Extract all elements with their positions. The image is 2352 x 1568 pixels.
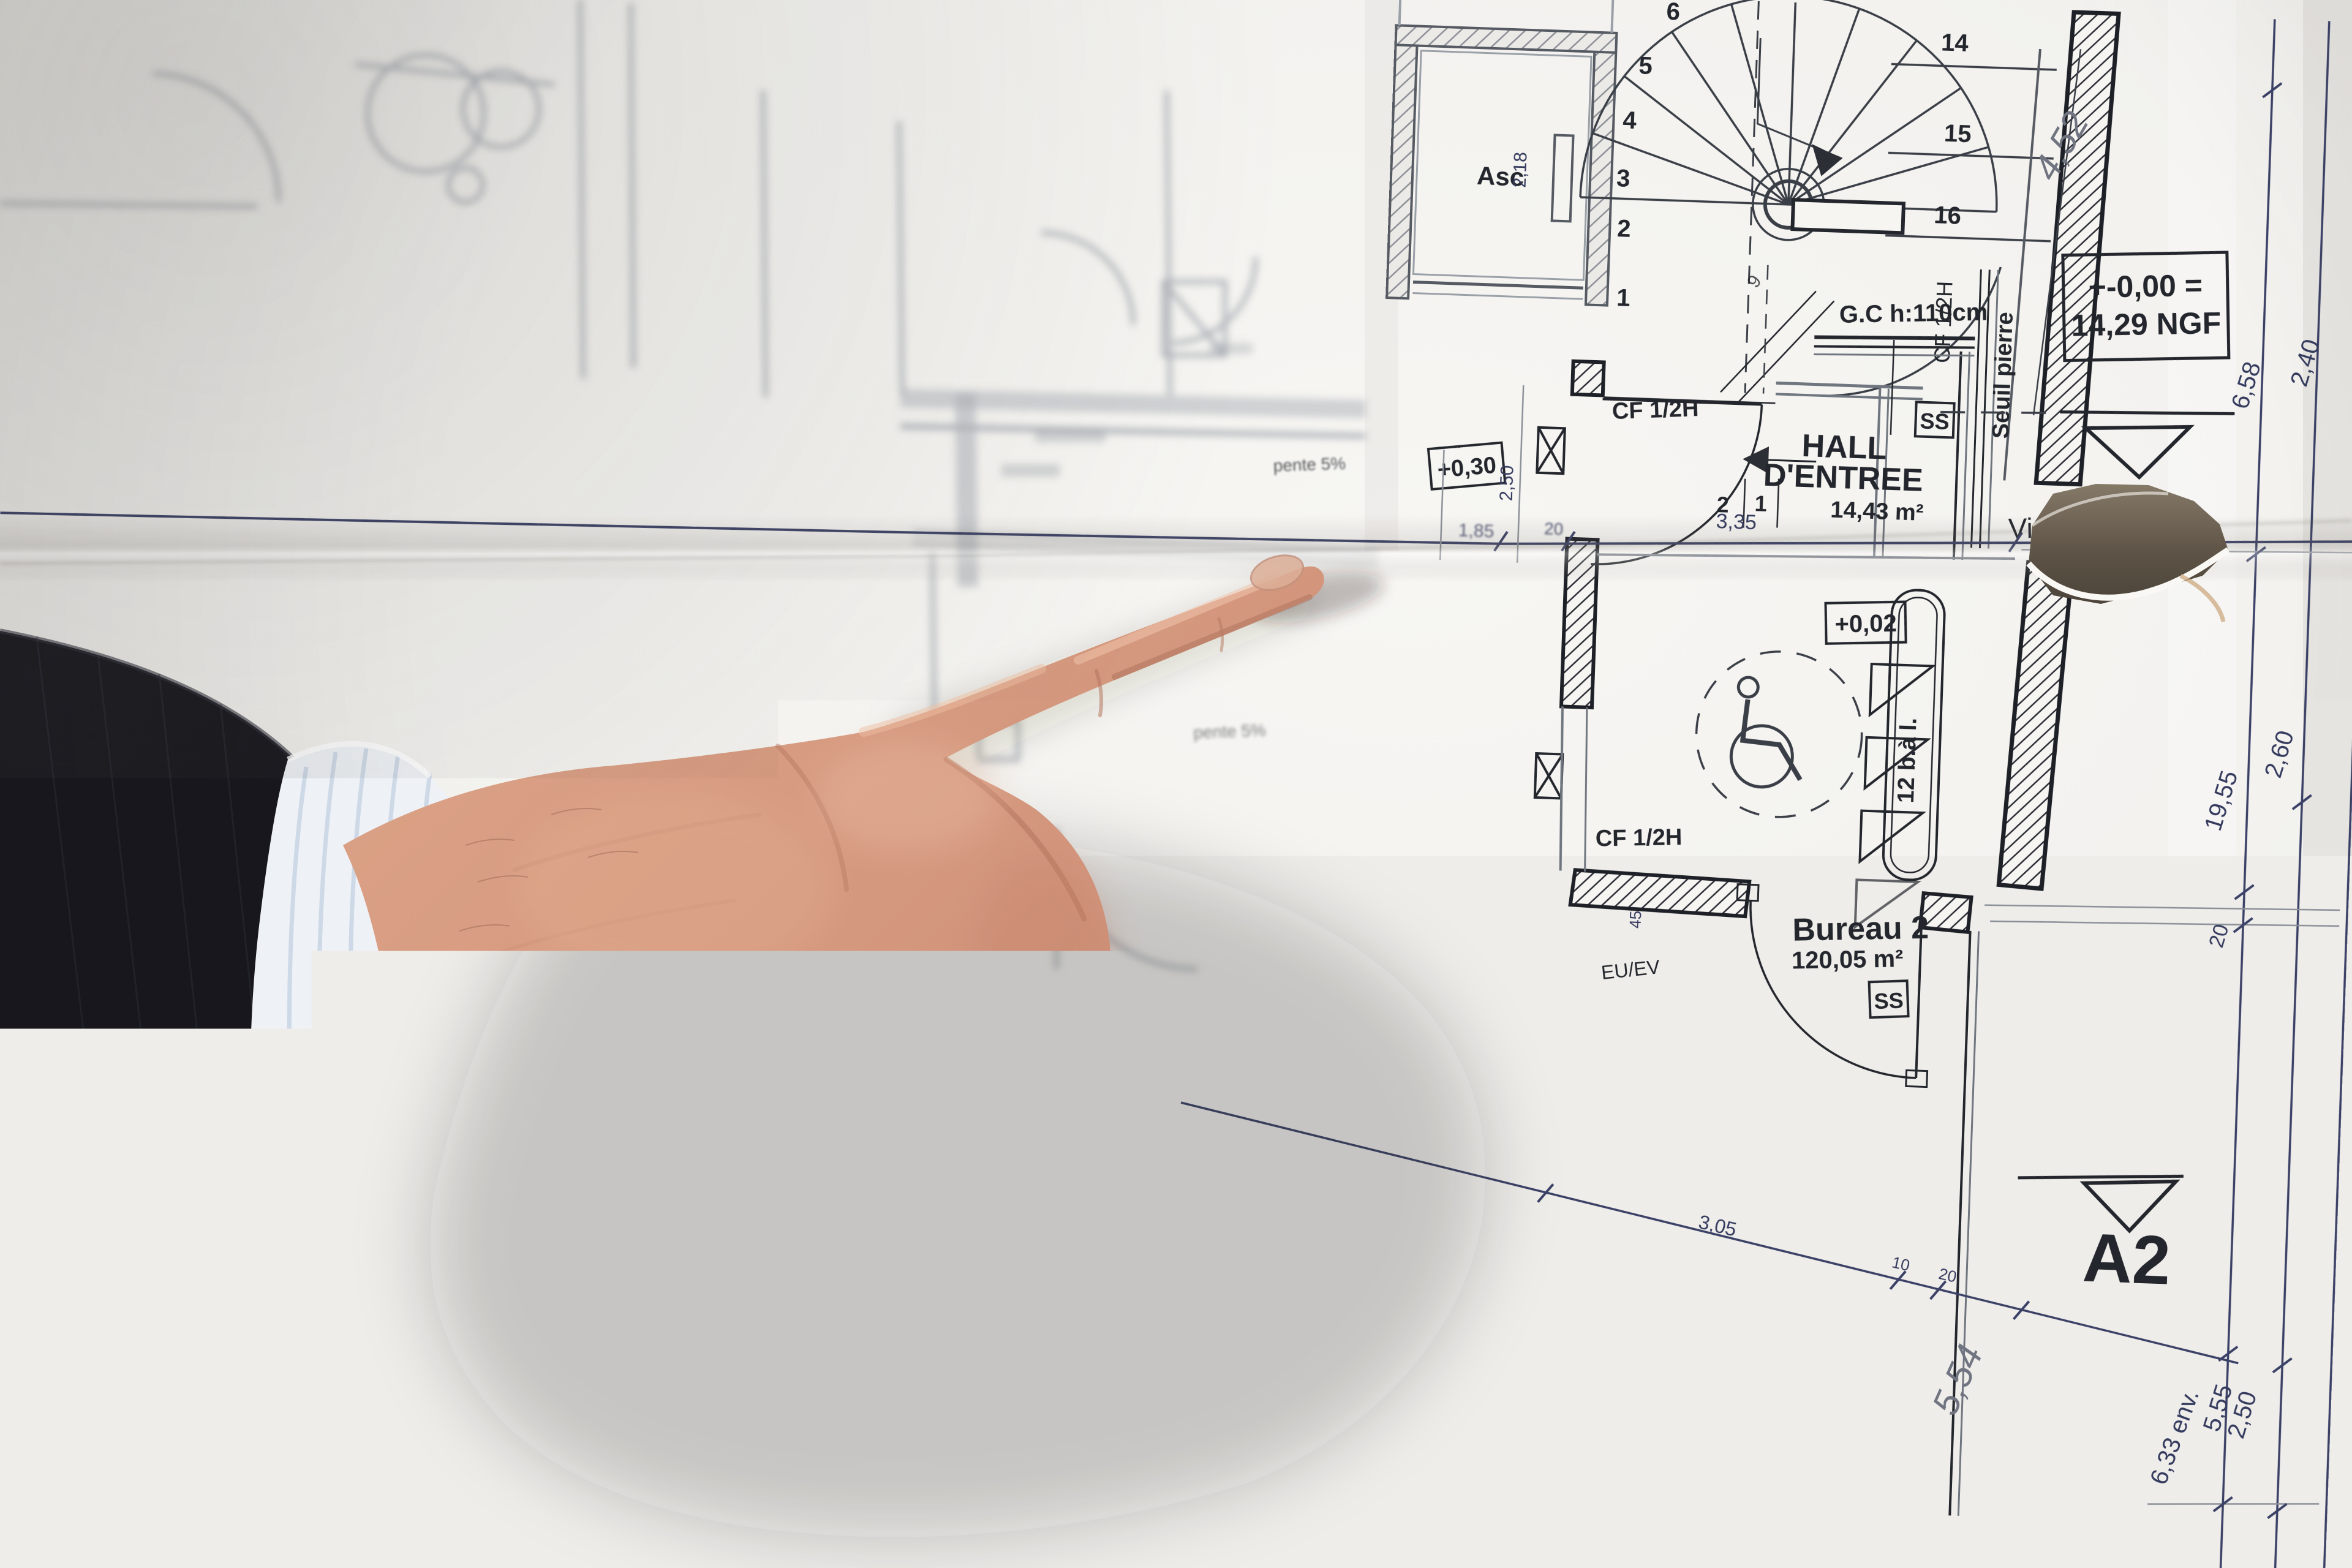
dim-250-vertical: 2,50 — [1496, 465, 1518, 502]
scene: Asc 2,18 — [0, 0, 2352, 1568]
svg-text:6: 6 — [1666, 0, 1681, 25]
cf-label-hall-top: CF 1/2H — [1611, 396, 1699, 424]
mailboxes-label: 12 b.à l. — [1893, 717, 1922, 804]
svg-text:A2: A2 — [2081, 1219, 2171, 1299]
svg-text:+0,30: +0,30 — [1436, 453, 1497, 483]
bureau2-area: 120,05 m² — [1792, 945, 1904, 974]
svg-text:15: 15 — [1943, 120, 1972, 148]
svg-text:2: 2 — [1617, 215, 1632, 243]
guard-rail-label: G.C h:110cm — [1839, 299, 1988, 328]
cf-label-bureau: CF 1/2H — [1596, 824, 1683, 851]
hall-name2: D'ENTREE — [1763, 458, 1924, 499]
svg-text:14: 14 — [1940, 29, 1969, 57]
elevator-dim: 2,18 — [1510, 152, 1531, 189]
svg-text:+0,02: +0,02 — [1834, 610, 1897, 638]
svg-text:4: 4 — [1623, 107, 1638, 134]
svg-text:3: 3 — [1616, 165, 1630, 192]
seuil-pierre-label: Seuil pierre — [1988, 312, 2018, 439]
paper-crease — [0, 514, 2352, 582]
pente-label-2: pente 5% — [1193, 720, 1266, 742]
svg-text:+-0,00 =: +-0,00 = — [2088, 268, 2203, 304]
dim-45: 45 — [1626, 910, 1645, 929]
svg-text:1: 1 — [1616, 284, 1631, 312]
pente-label-1: pente 5% — [1273, 454, 1346, 475]
bureau2-name: Bureau 2 — [1792, 910, 1929, 948]
svg-text:+0,17: +0,17 — [1711, 1091, 1774, 1119]
photo-of-hand-pointing-at-floor-plan: Asc 2,18 — [0, 0, 2352, 1568]
svg-text:16: 16 — [1934, 202, 1962, 230]
svg-text:14,29 NGF: 14,29 NGF — [2071, 306, 2222, 342]
svg-text:5: 5 — [1638, 52, 1653, 80]
svg-text:SS: SS — [1874, 987, 1904, 1014]
